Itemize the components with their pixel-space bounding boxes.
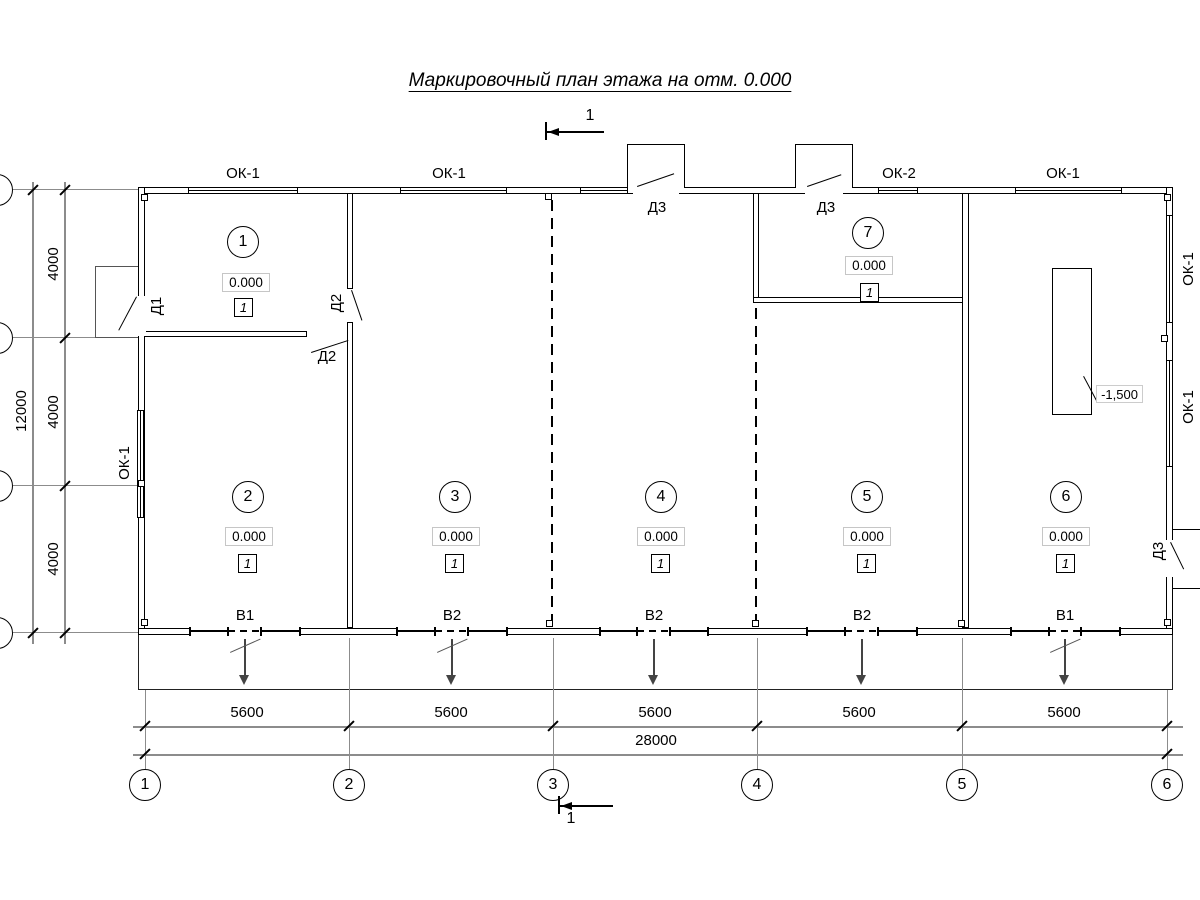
gate-tick: [1080, 627, 1082, 636]
window-ok1: [1166, 360, 1173, 467]
drawing-title: Маркировочный план этажа на отм. 0.000: [0, 70, 1200, 92]
column-axis-bubble-4: 4: [741, 769, 773, 801]
gate-tick: [669, 627, 671, 636]
partition-marker: [546, 620, 553, 627]
corner-marker: [141, 619, 148, 626]
gate-line-dashed: [1049, 630, 1081, 632]
row-axis-bubble: [0, 174, 13, 206]
grid-line-2: [349, 638, 350, 769]
gate-tick: [1010, 627, 1012, 636]
room-finish-mark: 1: [445, 554, 464, 573]
dim-label-4000: 4000: [45, 234, 61, 294]
gate-line: [878, 630, 917, 632]
gate-line: [468, 630, 507, 632]
room-finish-mark: 1: [1056, 554, 1075, 573]
gate-line-dashed: [637, 630, 670, 632]
room-elevation: 0.000: [637, 527, 685, 546]
entrance-porch: [95, 266, 138, 338]
gate-line: [807, 630, 845, 632]
gate-tick: [189, 627, 191, 636]
dim-label-5600: 5600: [217, 704, 277, 721]
partition-marker: [545, 193, 552, 200]
gate-label: В2: [837, 607, 887, 624]
dashed-partition: [755, 308, 757, 624]
window-ok2: [878, 187, 918, 194]
window-label-ok1: ОК-1: [419, 165, 479, 182]
room-number: 6: [1050, 481, 1082, 513]
gate-tick: [599, 627, 601, 636]
entrance-vestibule: [795, 144, 853, 188]
dim-label-12000: 12000: [13, 381, 29, 441]
gate-tick: [467, 627, 469, 636]
gate-line-dashed: [435, 630, 468, 632]
grid-line-3: [553, 638, 554, 769]
room-number: 3: [439, 481, 471, 513]
room-finish-mark: 1: [234, 298, 253, 317]
door-swing: [351, 290, 362, 321]
gate-arrow: [861, 639, 863, 677]
section-arrowhead: [561, 802, 572, 810]
room-number: 4: [645, 481, 677, 513]
gate-line: [670, 630, 708, 632]
corner-marker: [141, 194, 148, 201]
gate-tick: [1048, 627, 1050, 636]
door-label-d2: Д2: [302, 348, 352, 365]
gate-label: В2: [629, 607, 679, 624]
bottom-wall-segment: [300, 628, 397, 635]
window-label-ok1: ОК-1: [1180, 377, 1196, 437]
gate-label: В2: [427, 607, 477, 624]
pit-outline: [1052, 268, 1092, 415]
room-number: 1: [227, 226, 259, 258]
window-label-ok1: ОК-1: [1033, 165, 1093, 182]
gate-tick: [434, 627, 436, 636]
gate-line: [600, 630, 637, 632]
door-label-d3: Д3: [632, 199, 682, 216]
partition-wall-axis5: [962, 193, 969, 628]
door-opening: [137, 296, 146, 336]
room-number: 5: [851, 481, 883, 513]
grid-line-4: [757, 638, 758, 769]
room-elevation: 0.000: [1042, 527, 1090, 546]
stoop-line: [1173, 529, 1200, 530]
dim-label-4000: 4000: [45, 529, 61, 589]
gate-arrowhead: [1059, 675, 1069, 685]
grid-line-1: [145, 690, 146, 769]
gate-line-dashed: [845, 630, 878, 632]
window-label-ok1: ОК-1: [1180, 239, 1196, 299]
room-elevation: 0.000: [225, 527, 273, 546]
gate-arrowhead: [648, 675, 658, 685]
gate-label: В1: [220, 607, 270, 624]
partition-marker: [958, 620, 965, 627]
gate-tick: [227, 627, 229, 636]
grid-line-5: [962, 638, 963, 769]
dim-label-5600: 5600: [1034, 704, 1094, 721]
gate-arrowhead: [446, 675, 456, 685]
entrance-vestibule: [627, 144, 685, 188]
partition-wall: [347, 322, 353, 628]
dim-label-28000: 28000: [616, 732, 696, 749]
dim-label-5600: 5600: [625, 704, 685, 721]
gate-line: [261, 630, 300, 632]
bottom-wall-segment: [708, 628, 807, 635]
column-axis-bubble-3: 3: [537, 769, 569, 801]
room-finish-mark: 1: [860, 283, 879, 302]
row-axis-bubble: [0, 470, 13, 502]
gate-tick: [916, 627, 918, 636]
gate-line-dashed: [228, 630, 261, 632]
row-axis-bubble: [0, 322, 13, 354]
gate-tick: [299, 627, 301, 636]
room-elevation: 0.000: [843, 527, 891, 546]
room-finish-mark: 1: [651, 554, 670, 573]
partition-marker: [752, 620, 759, 627]
gate-tick: [806, 627, 808, 636]
window-ok1: [1015, 187, 1122, 194]
section-label: 1: [575, 107, 605, 125]
gate-tick: [636, 627, 638, 636]
dimension-line: [133, 754, 1183, 756]
stoop-line: [1173, 588, 1200, 589]
mullion-marker: [138, 480, 145, 487]
section-arrowhead: [548, 128, 559, 136]
gate-line: [397, 630, 435, 632]
window-ok1: [188, 187, 298, 194]
window-ok1: [580, 187, 628, 194]
dimension-line: [133, 726, 1183, 728]
column-axis-bubble-5: 5: [946, 769, 978, 801]
gate-tick: [506, 627, 508, 636]
column-axis-bubble-1: 1: [129, 769, 161, 801]
column-axis-bubble-6: 6: [1151, 769, 1183, 801]
mullion-marker: [1161, 335, 1168, 342]
gate-line: [190, 630, 228, 632]
room-elevation: 0.000: [222, 273, 270, 292]
room-elevation: 0.000: [432, 527, 480, 546]
room-finish-mark: 1: [857, 554, 876, 573]
gate-tick: [260, 627, 262, 636]
partition-wall: [144, 331, 307, 337]
gate-tick: [396, 627, 398, 636]
gate-arrowhead: [239, 675, 249, 685]
window-ok1: [1166, 215, 1173, 323]
gate-arrow: [653, 639, 655, 677]
window-label-ok1: ОК-1: [213, 165, 273, 182]
window-ok1: [400, 187, 507, 194]
dimension-line: [64, 182, 66, 644]
gate-tick: [877, 627, 879, 636]
dim-label-5600: 5600: [421, 704, 481, 721]
grid-line-6: [1167, 690, 1168, 769]
corner-marker: [1164, 194, 1171, 201]
window-label-ok2: ОК-2: [869, 165, 929, 182]
dimension-line: [32, 182, 34, 644]
door-label-d2: Д2: [328, 273, 344, 333]
gate-line: [1011, 630, 1049, 632]
dashed-partition: [551, 200, 553, 624]
window-label-ok1: ОК-1: [116, 433, 132, 493]
bottom-wall-segment: [1120, 628, 1173, 635]
section-label: 1: [556, 810, 586, 828]
bottom-wall-segment: [917, 628, 1011, 635]
room-number: 7: [852, 217, 884, 249]
window-ok1: [137, 410, 144, 518]
row-axis-bubble: [0, 617, 13, 649]
floor-plan-drawing: Маркировочный план этажа на отм. 0.000 4…: [0, 0, 1200, 900]
gate-label: В1: [1040, 607, 1090, 624]
dim-label-4000: 4000: [45, 382, 61, 442]
gate-arrowhead: [856, 675, 866, 685]
door-label-d1: Д1: [148, 276, 164, 336]
gate-line: [1081, 630, 1120, 632]
column-axis-bubble-2: 2: [333, 769, 365, 801]
room7-left-wall: [753, 193, 759, 303]
bottom-wall-segment: [507, 628, 600, 635]
partition-wall: [347, 193, 353, 289]
door-label-d3: Д3: [801, 199, 851, 216]
bottom-wall-segment: [138, 628, 190, 635]
door-label-d3: Д3: [1150, 521, 1166, 581]
dim-label-5600: 5600: [829, 704, 889, 721]
room-finish-mark: 1: [238, 554, 257, 573]
room-number: 2: [232, 481, 264, 513]
gate-tick: [1119, 627, 1121, 636]
pit-elevation: -1,500: [1096, 385, 1143, 403]
room-elevation: 0.000: [845, 256, 893, 275]
gate-tick: [844, 627, 846, 636]
corner-marker: [1164, 619, 1171, 626]
gate-tick: [707, 627, 709, 636]
